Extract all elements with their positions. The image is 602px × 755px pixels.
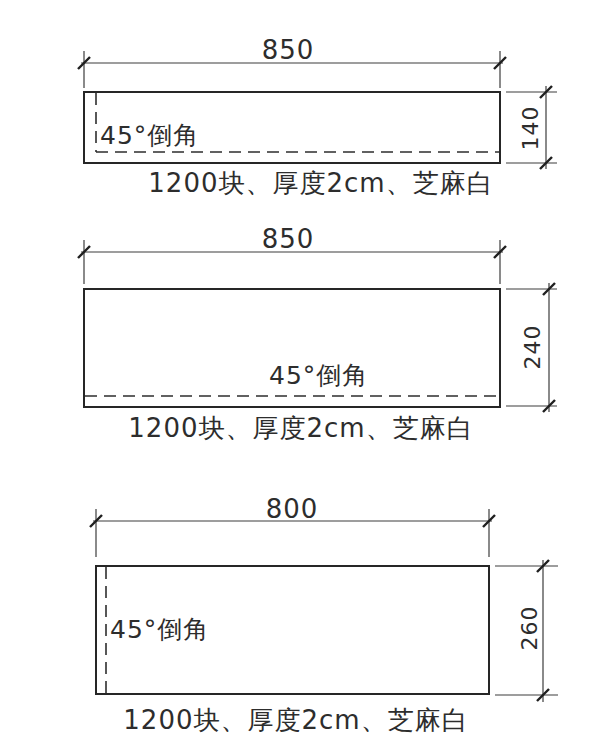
panel1-height-dimension-label: 140 — [520, 106, 542, 151]
panel3-caption: 1200块、厚度2cm、芝麻白 — [123, 707, 468, 733]
panel3-width-dimension-label: 800 — [266, 496, 319, 522]
technical-drawing-canvas: 850 140 45°倒角 1200块、厚度2cm、芝麻白 850 240 45… — [0, 0, 602, 755]
panel3-height-dimension-label: 260 — [519, 606, 541, 651]
panel2-caption: 1200块、厚度2cm、芝麻白 — [128, 415, 473, 441]
panel1-linework — [78, 51, 557, 169]
panel2-width-dimension-label: 850 — [262, 226, 315, 252]
panel3-chamfer-note: 45°倒角 — [110, 617, 209, 642]
panel2-chamfer-note: 45°倒角 — [269, 363, 368, 388]
panel2-height-dimension-label: 240 — [522, 325, 544, 370]
panel1-caption: 1200块、厚度2cm、芝麻白 — [148, 170, 493, 196]
panel1-chamfer-note: 45°倒角 — [100, 123, 199, 148]
panel1-width-dimension-label: 850 — [262, 37, 315, 63]
panel3-linework — [90, 509, 558, 702]
